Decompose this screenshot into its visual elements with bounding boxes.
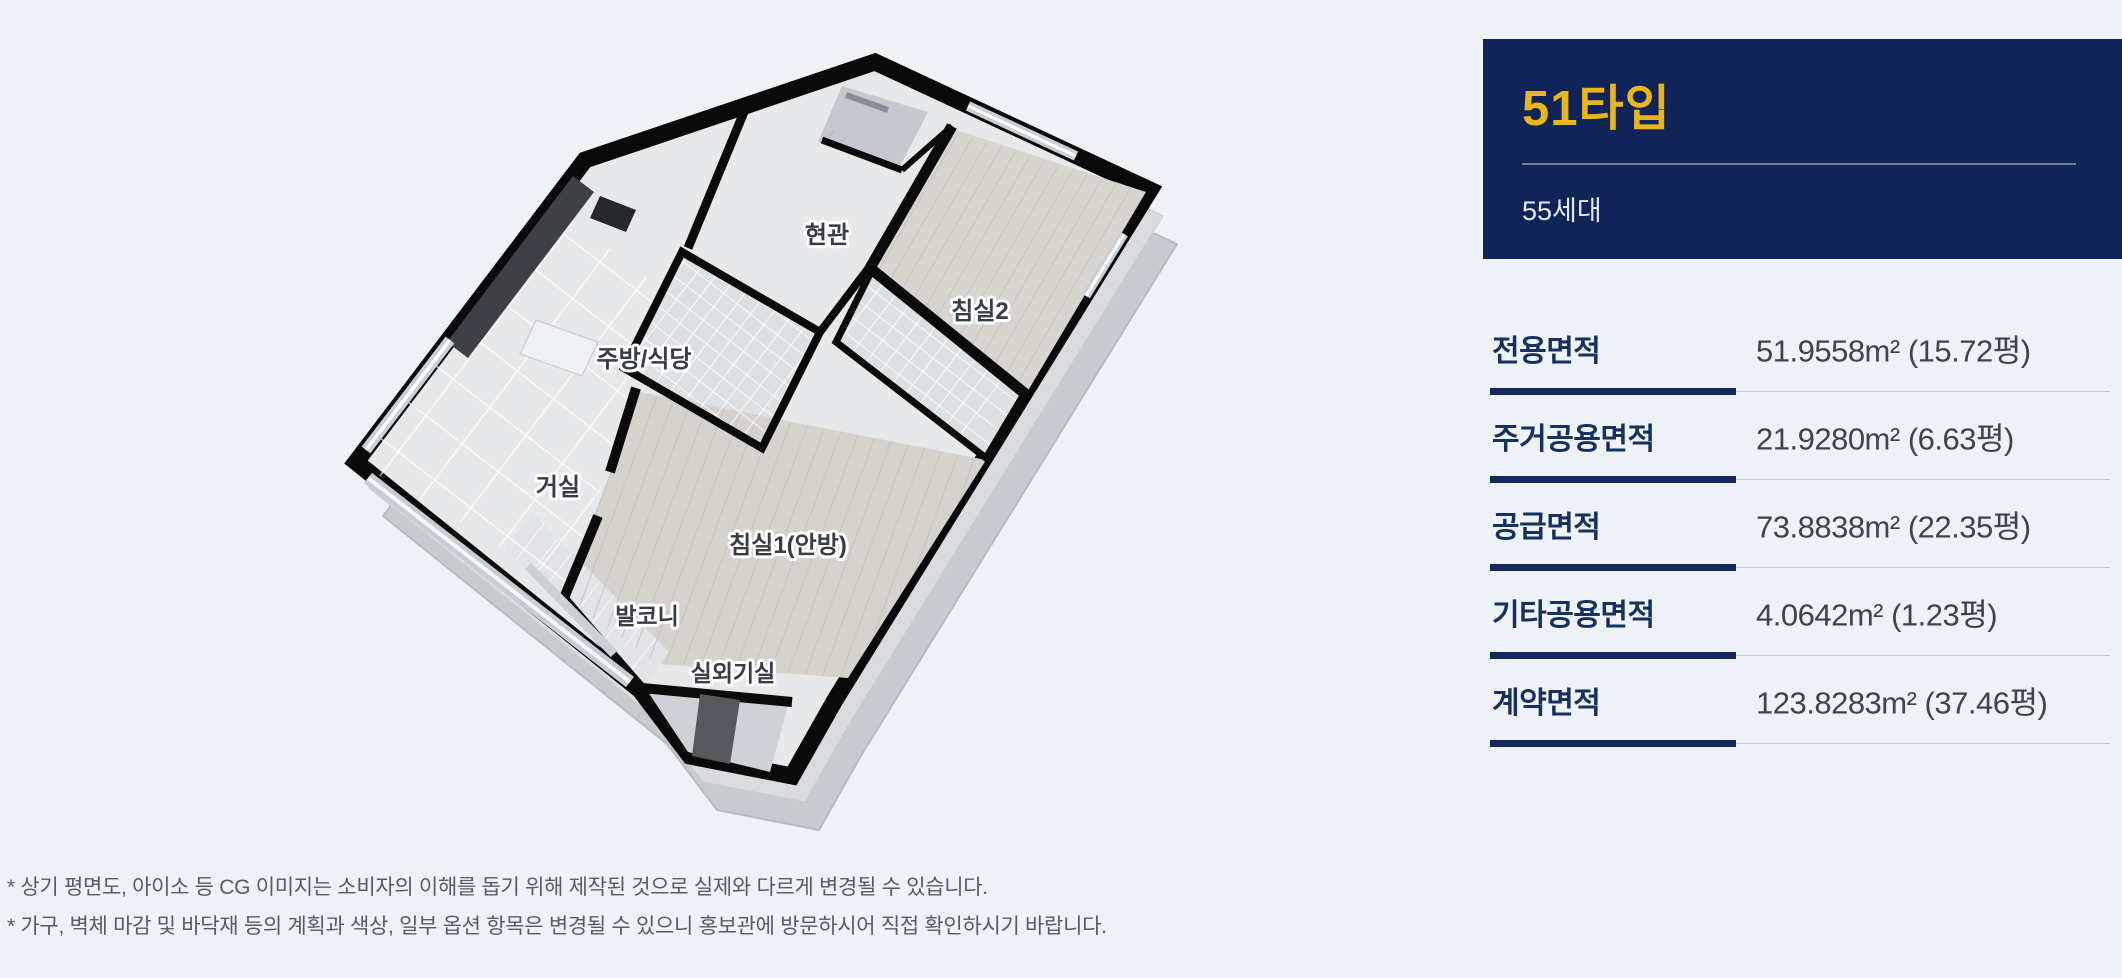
footnotes: * 상기 평면도, 아이소 등 CG 이미지는 소비자의 이해를 돕기 위해 제… [7,868,1107,946]
area-row-value: 73.8838m² (22.35평) [1756,502,2031,547]
households-count: 55세대 [1522,189,1602,228]
room-label-kitchen: 주방/식당 [597,346,692,373]
table-row: 전용면적 51.9558m² (15.72평) [1490,304,2110,392]
footnote-line: * 상기 평면도, 아이소 등 CG 이미지는 소비자의 이해를 돕기 위해 제… [7,868,1107,907]
area-row-label: 공급면적 [1492,502,1600,546]
footnote-line: * 가구, 벽체 마감 및 바닥재 등의 계획과 색상, 일부 옵션 항목은 변… [7,907,1107,946]
room-label-balcony: 발코니 [615,603,678,629]
row-accent-bar [1490,740,1736,747]
floor-plan-illustration: 현관 침실2 주방/식당 거실 침실1(안방) 발코니 실외기실 [0,0,1480,978]
area-row-label: 주거공용면적 [1492,414,1655,458]
room-label-living: 거실 [536,474,580,501]
table-row: 계약면적 123.8283m² (37.46평) [1490,656,2110,744]
room-label-bedroom2: 침실2 [951,298,1009,325]
area-row-value: 51.9558m² (15.72평) [1756,326,2031,371]
area-row-value: 123.8283m² (37.46평) [1756,678,2047,723]
area-row-label: 기타공용면적 [1492,590,1655,634]
area-row-value: 4.0642m² (1.23평) [1756,590,1997,635]
table-row: 공급면적 73.8838m² (22.35평) [1490,480,2110,568]
area-row-value: 21.9280m² (6.63평) [1756,414,2014,459]
table-row: 기타공용면적 4.0642m² (1.23평) [1490,568,2110,656]
unit-type-title: 51타입 [1522,69,1671,140]
area-spec-table: 전용면적 51.9558m² (15.72평) 주거공용면적 21.9280m²… [1490,304,2110,744]
unit-type-card: 51타입 55세대 [1483,39,2122,259]
floor-plan-svg: 현관 침실2 주방/식당 거실 침실1(안방) 발코니 실외기실 [0,0,1480,978]
area-row-label: 전용면적 [1492,326,1600,370]
card-divider [1522,163,2076,165]
room-label-bedroom1: 침실1(안방) [729,532,847,559]
area-row-label: 계약면적 [1492,678,1600,722]
room-label-outdoor-unit: 실외기실 [691,660,776,686]
table-row: 주거공용면적 21.9280m² (6.63평) [1490,392,2110,480]
page: 현관 침실2 주방/식당 거실 침실1(안방) 발코니 실외기실 51타입 55… [0,0,2122,978]
room-label-entrance: 현관 [805,222,849,249]
